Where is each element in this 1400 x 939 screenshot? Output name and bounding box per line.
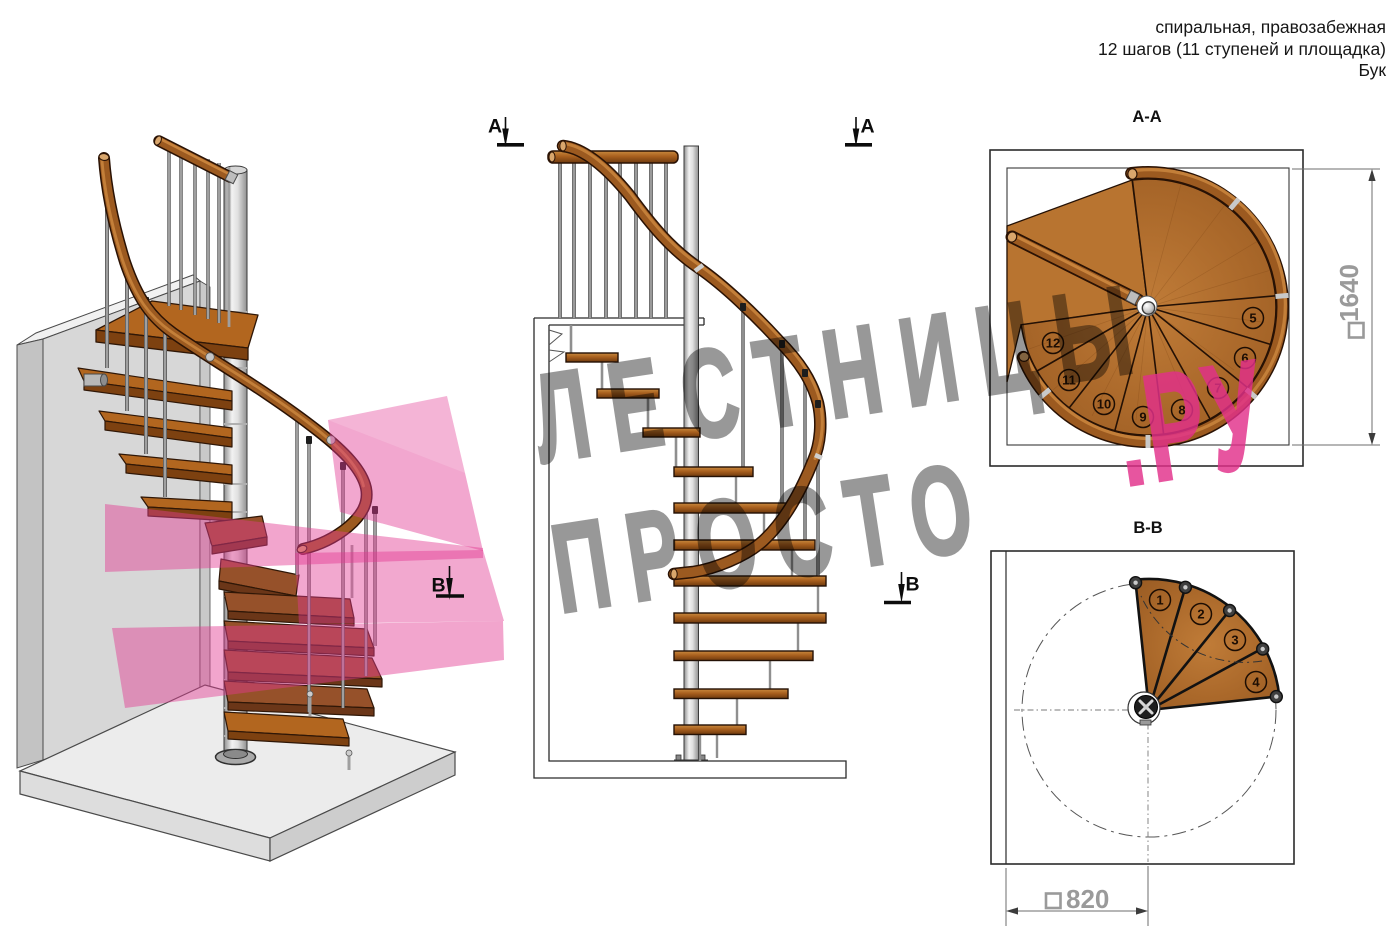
svg-text:B-B: B-B [1133,519,1162,537]
svg-text:A: A [861,116,875,138]
svg-text:3: 3 [1231,633,1238,648]
svg-text:B: B [432,575,446,597]
svg-text:1640: 1640 [1334,264,1364,322]
svg-text:2: 2 [1197,607,1204,622]
svg-text:820: 820 [1066,884,1109,914]
svg-text:5: 5 [1249,311,1256,326]
svg-text:1: 1 [1156,593,1163,608]
svg-text:A: A [488,116,502,138]
svg-text:4: 4 [1252,675,1260,690]
svg-text:.РУ: .РУ [1104,329,1279,519]
svg-text:Бук: Бук [1358,60,1386,80]
svg-text:B: B [906,574,920,596]
svg-text:A-A: A-A [1132,108,1161,126]
svg-text:спиральная, правозабежная: спиральная, правозабежная [1155,17,1386,37]
svg-text:12 шагов (11 ступеней и площад: 12 шагов (11 ступеней и площадка) [1098,39,1386,59]
